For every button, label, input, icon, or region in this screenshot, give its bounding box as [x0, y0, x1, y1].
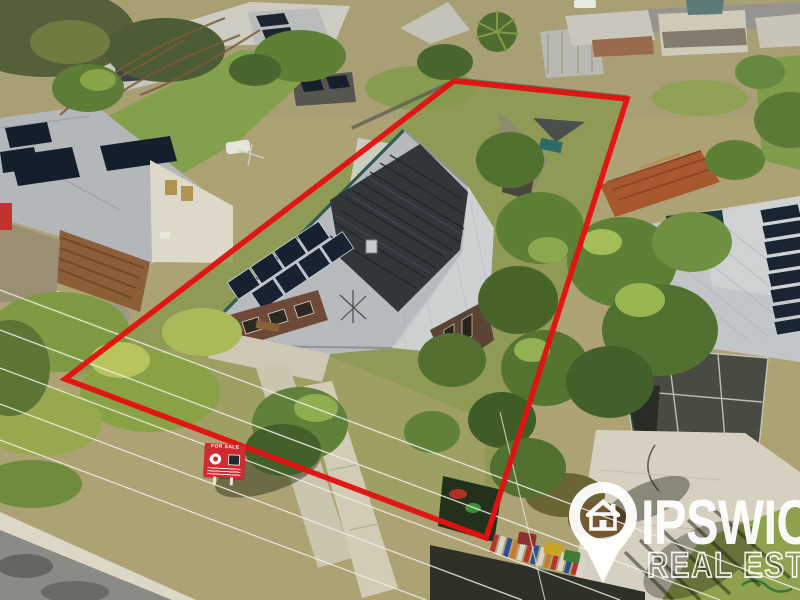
sign-logo-pin-icon: [208, 451, 224, 467]
shrub-highlight: [80, 69, 116, 91]
yard-tree: [418, 333, 486, 387]
large-tree: [566, 346, 654, 418]
tree-over-shed: [705, 140, 765, 180]
boundary-trees: [476, 132, 544, 188]
sign-contact-text: [207, 467, 240, 476]
sign-agent-photo: [228, 454, 241, 466]
tree-highlight: [582, 229, 622, 255]
tree: [417, 44, 473, 80]
chimney-flue: [366, 240, 377, 253]
photo-scene: [0, 0, 800, 600]
front-shrubs: [162, 308, 242, 356]
upper-window: [181, 186, 193, 201]
bushland-trees: [30, 20, 110, 64]
tree-highlight: [615, 283, 665, 317]
tree-highlight: [528, 237, 568, 263]
red-banner: [0, 203, 12, 230]
large-tree: [652, 212, 732, 272]
shrub-highlight: [90, 342, 150, 378]
air-conditioner: [160, 232, 170, 239]
right-edge-trees: [735, 55, 785, 89]
bushland-trees: [105, 18, 225, 82]
background-house-roof: [755, 14, 800, 48]
upper-window: [165, 180, 177, 195]
for-sale-sign: FOR SALE: [203, 443, 246, 479]
yard-tree: [404, 411, 460, 453]
boundary-trees: [478, 266, 558, 334]
parked-white-vehicle: [574, 0, 596, 8]
back-trees: [229, 54, 281, 86]
red-play-equipment: [449, 489, 467, 499]
for-sale-sign-text: FOR SALE: [205, 443, 246, 452]
teal-roof-house: [686, 0, 724, 15]
green-lawn-patch: [652, 80, 748, 116]
aerial-photo: FOR SALE IPSWICH REAL ESTATE: [0, 0, 800, 600]
